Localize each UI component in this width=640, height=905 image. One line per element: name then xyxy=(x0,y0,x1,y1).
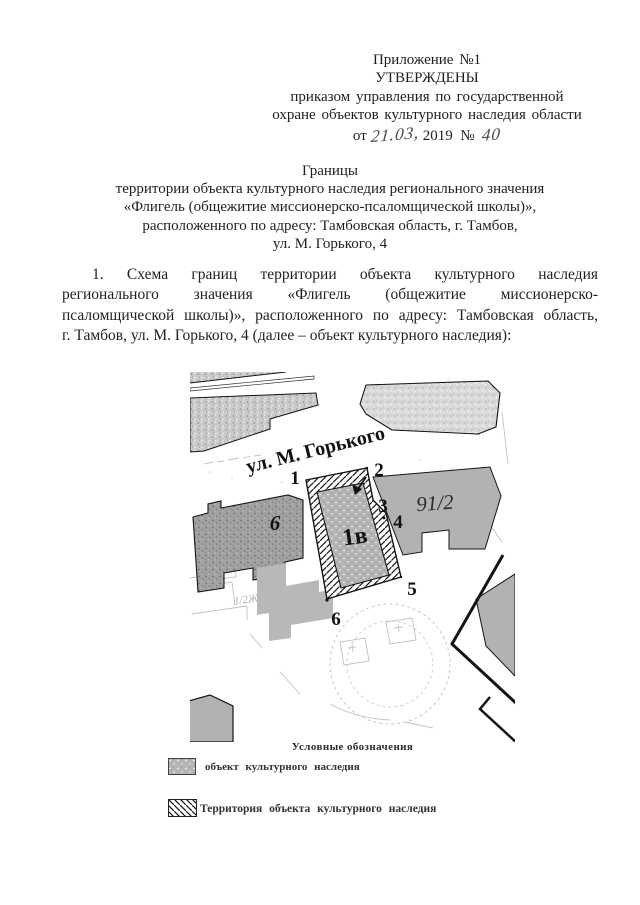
thick-boundary-line-2 xyxy=(480,697,515,742)
paragraph-line-4: г. Тамбов, ул. М. Горького, 4 (далее – о… xyxy=(62,326,598,346)
building-extension xyxy=(257,563,333,641)
title-line-5: ул. М. Горького, 4 xyxy=(20,235,640,253)
approval-line-1: приказом управления по государственной xyxy=(252,88,602,106)
neighbor-building-label: 6 xyxy=(270,511,281,535)
approval-line-2: охране объектов культурного наследия обл… xyxy=(252,106,602,124)
title-line-2: территории объекта культурного наследия … xyxy=(20,180,640,198)
number-sign: № xyxy=(460,128,474,144)
point-label-5: 5 xyxy=(407,579,417,600)
order-year: 2019 xyxy=(423,128,453,144)
point-label-4: 4 xyxy=(393,512,403,533)
point-label-3: 3 xyxy=(378,496,388,517)
approved-label: УТВЕРЖДЕНЫ xyxy=(252,69,602,87)
point-label-6: 6 xyxy=(331,609,341,630)
paragraph-line-1: 1. Схема границ территории объекта культ… xyxy=(62,265,598,285)
parcel-label: 91/2 xyxy=(415,490,454,517)
site-plan-map: ул. М. Горького 1 2 3 4 5 6 1в 6 91/2 1/… xyxy=(190,372,515,742)
point-label-1: 1 xyxy=(290,468,300,489)
legend-title: Условные обозначения xyxy=(190,741,515,753)
title-line-3: «Флигель (общежитие миссионерско-псаломщ… xyxy=(20,198,640,216)
body-paragraph: 1. Схема границ территории объекта культ… xyxy=(62,265,598,347)
title-line-1: Границы xyxy=(20,162,640,180)
building-bottom-left xyxy=(190,695,233,742)
paragraph-line-3: псаломщической школы)», расположенного п… xyxy=(62,306,598,326)
legend-label-object: объект культурного наследия xyxy=(205,761,360,773)
object-label: 1в xyxy=(341,522,369,551)
title-line-4: расположенного по адресу: Тамбовская обл… xyxy=(20,217,640,235)
point-label-2: 2 xyxy=(374,460,384,481)
order-date-line: от 21.03, 2019 № 40 xyxy=(252,126,602,145)
document-title: Границы территории объекта культурного н… xyxy=(20,162,640,253)
handwritten-number: 40 xyxy=(481,125,501,144)
appendix-label: Приложение №1 xyxy=(252,51,602,69)
legend-swatch-object xyxy=(168,758,196,780)
building-6 xyxy=(193,495,303,592)
faint-parcel-label: 1/2Ж xyxy=(233,592,259,607)
approval-block: Приложение №1 УТВЕРЖДЕНЫ приказом управл… xyxy=(252,51,602,145)
site-plan-svg: ул. М. Горького 1 2 3 4 5 6 1в 6 91/2 1/… xyxy=(190,372,515,742)
date-prefix: от xyxy=(353,128,367,144)
legend-label-territory: Территория объекта культурного наследия xyxy=(200,803,436,815)
document-page: Приложение №1 УТВЕРЖДЕНЫ приказом управл… xyxy=(0,0,640,905)
handwritten-date: 21.03, xyxy=(370,123,420,144)
legend-swatch-territory xyxy=(168,799,197,822)
paragraph-line-2: регионального значения «Флигель (общежит… xyxy=(62,285,598,305)
